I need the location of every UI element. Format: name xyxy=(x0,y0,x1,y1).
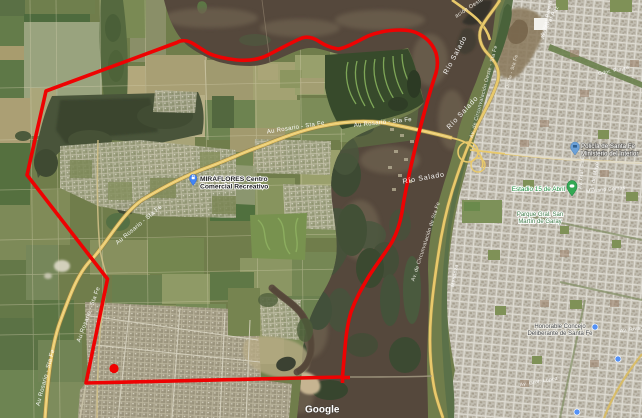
svg-text:Martín de Garay: Martín de Garay xyxy=(518,219,561,225)
svg-text:Estadio 15 de Abril: Estadio 15 de Abril xyxy=(512,186,565,193)
svg-text:Policía de Santa Fe: Policía de Santa Fe xyxy=(581,143,636,150)
svg-text:Honorable Concejo: Honorable Concejo xyxy=(534,324,586,330)
svg-text:MIRAFLORES Centro: MIRAFLORES Centro xyxy=(200,176,268,183)
svg-text:Ministerio del Interior: Ministerio del Interior xyxy=(581,151,638,158)
svg-text:Parque Gral. San: Parque Gral. San xyxy=(517,212,563,218)
svg-text:Deliberante de Santa Fe: Deliberante de Santa Fe xyxy=(527,331,593,337)
svg-text:Google: Google xyxy=(305,405,340,416)
svg-text:Comercial Recreativo: Comercial Recreativo xyxy=(200,184,268,191)
